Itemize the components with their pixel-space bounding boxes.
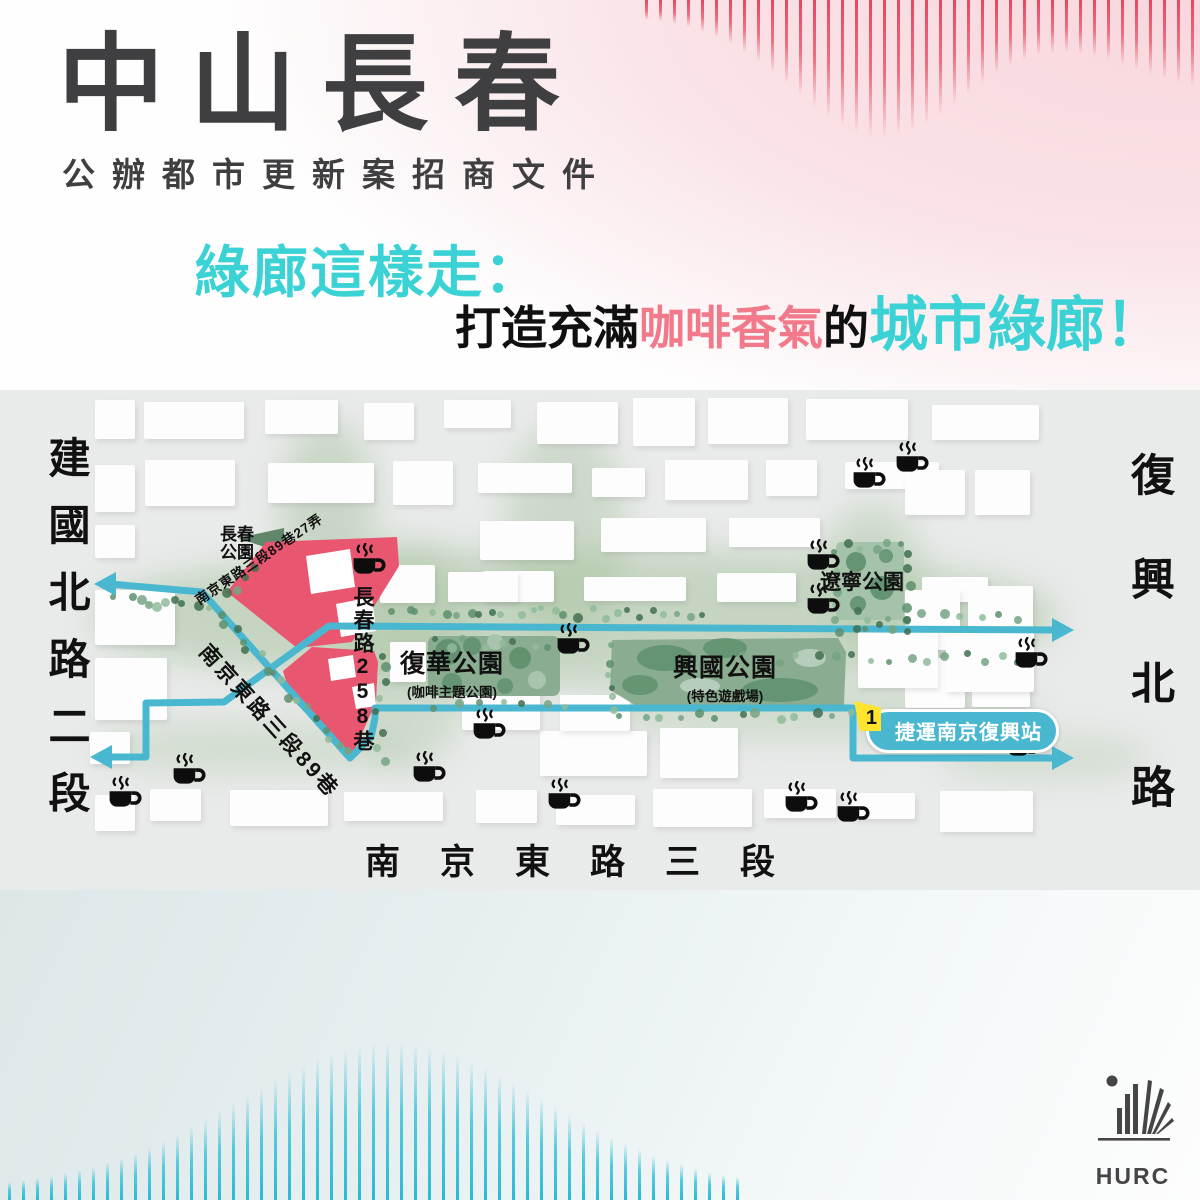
- wave-line: [414, 1044, 417, 1200]
- tree-dot: [240, 639, 247, 646]
- tree-dot: [856, 546, 863, 553]
- tree-dot: [886, 659, 892, 665]
- tree-dot: [902, 603, 912, 613]
- tree-dot: [610, 706, 618, 714]
- tree-dot: [873, 545, 882, 554]
- tree-dot: [678, 715, 684, 721]
- tree-dot: [241, 646, 249, 654]
- wave-line: [1107, 0, 1110, 60]
- wave-line: [736, 1177, 739, 1200]
- map-building: [150, 789, 201, 821]
- tree-dot: [868, 658, 874, 664]
- wave-line: [1065, 0, 1068, 52]
- tree-dot: [323, 727, 330, 734]
- tree-dot: [293, 697, 300, 704]
- coffee-cup-icon: [468, 708, 508, 744]
- wave-line: [1149, 0, 1152, 75]
- tree-dot: [815, 651, 824, 660]
- tree-dot: [1014, 616, 1022, 624]
- tree-dot: [917, 609, 926, 618]
- wave-line: [925, 0, 928, 124]
- map-building: [344, 792, 443, 821]
- wave-line: [568, 1114, 571, 1200]
- wave-line: [372, 1043, 375, 1200]
- tree-dot: [655, 714, 663, 722]
- wave-line: [1037, 0, 1040, 55]
- wave-line: [855, 0, 858, 133]
- coffee-cup-icon: [543, 778, 583, 814]
- tree-dot: [313, 715, 320, 722]
- wave-line: [1121, 0, 1124, 65]
- map-building: [144, 402, 244, 439]
- tree-dot: [674, 611, 680, 617]
- tree-dot: [411, 608, 418, 615]
- tree-dot: [777, 715, 786, 724]
- tree-dot: [602, 615, 610, 623]
- tree-dot: [609, 685, 615, 691]
- mrt-station-badge: 捷運南京復興站 1: [866, 709, 1059, 753]
- wave-line: [813, 0, 816, 108]
- wave-line: [1135, 0, 1138, 70]
- coffee-cup-icon: [104, 776, 144, 812]
- map-building: [975, 470, 1030, 515]
- tree-dot: [616, 713, 622, 719]
- wave-line: [288, 1071, 291, 1200]
- tree-dot: [904, 550, 912, 558]
- wave-line: [708, 1172, 711, 1200]
- map-building: [145, 460, 235, 506]
- tree-dot: [110, 594, 116, 600]
- map-area: 建國北路二段 復興北路 南京東路三段 南京東路三段89巷27弄 南京東路三段89…: [0, 390, 1200, 890]
- park-label-changchun: 長春 公園: [220, 526, 276, 563]
- tree-dot: [284, 694, 293, 703]
- slogan-part-1: 打造充滿: [455, 302, 639, 355]
- wave-line: [1177, 0, 1180, 83]
- tree-dot: [844, 539, 853, 548]
- map-building: [478, 463, 572, 493]
- wave-line: [680, 1164, 683, 1200]
- tree-dot: [904, 628, 911, 635]
- wave-line: [92, 1167, 95, 1200]
- wave-line: [358, 1045, 361, 1200]
- slogan-part-coffee: 咖啡香氣: [639, 302, 823, 355]
- map-building: [95, 465, 135, 512]
- tree-dot: [829, 713, 835, 719]
- tree-dot: [981, 658, 989, 666]
- tree-dot: [711, 715, 718, 722]
- wave-line: [694, 1168, 697, 1200]
- tree-dot: [218, 611, 226, 619]
- tree-dot: [459, 635, 466, 642]
- tree-dot: [835, 628, 844, 637]
- coffee-cup-icon: [780, 781, 820, 817]
- wave-line: [743, 0, 746, 53]
- tree-dot: [995, 611, 1002, 618]
- road-label-nanjing-e-rd: 南京東路三段: [250, 834, 890, 885]
- wave-line: [995, 0, 998, 74]
- coffee-cup-icon: [552, 623, 592, 659]
- wave-line: [8, 1182, 11, 1200]
- tree-dot: [940, 652, 949, 661]
- coffee-cup-icon: [168, 753, 208, 789]
- wave-line: [106, 1162, 109, 1200]
- wave-line: [897, 0, 900, 136]
- map-building: [480, 521, 574, 560]
- tree-dot: [590, 605, 597, 612]
- tree-dot: [489, 609, 496, 616]
- wave-line: [274, 1079, 277, 1200]
- tree-dot: [379, 729, 387, 737]
- tree-dot: [206, 605, 212, 611]
- wave-line: [981, 0, 984, 84]
- tree-dot: [161, 598, 170, 607]
- wave-line: [666, 1160, 669, 1200]
- tree-dot: [832, 652, 841, 661]
- coffee-cup-icon: [832, 791, 872, 827]
- wave-line: [78, 1170, 81, 1200]
- wave-line: [939, 0, 942, 115]
- tree-dot: [544, 644, 551, 651]
- tree-dot: [848, 709, 855, 716]
- wave-line: [484, 1067, 487, 1200]
- wave-line: [911, 0, 914, 131]
- footer: HURC: [0, 890, 1200, 1200]
- wave-line: [246, 1095, 249, 1200]
- route-arrow-east-1: [1052, 618, 1074, 642]
- map-building: [265, 400, 338, 434]
- tree-dot: [864, 617, 871, 624]
- wave-line: [1191, 0, 1194, 86]
- tree-dot: [813, 708, 823, 718]
- tree-dot: [234, 625, 242, 633]
- map-building: [393, 461, 453, 505]
- tree-dot: [614, 609, 622, 617]
- wave-line: [953, 0, 956, 105]
- map-building: [660, 728, 738, 778]
- park-label-liaoning: 遼寧公園: [820, 566, 935, 596]
- wave-line: [316, 1058, 319, 1200]
- wave-line: [757, 0, 760, 62]
- park-label-fuhua-name: 復華公園: [382, 644, 522, 680]
- wave-line: [722, 1175, 725, 1200]
- hurc-logo-mark: [1090, 1072, 1176, 1156]
- page-title: 中山長春: [58, 30, 586, 141]
- tree-dot: [325, 736, 332, 743]
- map-building: [653, 789, 752, 827]
- tree-dot: [475, 611, 482, 618]
- tree-dot: [908, 654, 917, 663]
- wave-line: [701, 0, 704, 32]
- wave-line: [190, 1127, 193, 1200]
- wave-line: [687, 0, 690, 27]
- wave-line: [218, 1111, 221, 1200]
- map-building: [766, 460, 817, 496]
- tree-dot: [999, 652, 1007, 660]
- map-building: [95, 400, 135, 439]
- coffee-cup-icon: [348, 543, 388, 579]
- tree-dot: [532, 643, 539, 650]
- tree-dot: [624, 607, 630, 613]
- map-building: [380, 565, 435, 603]
- tree-dot: [178, 600, 185, 607]
- tree-dot: [562, 704, 568, 710]
- wave-line: [1009, 0, 1012, 66]
- wave-line: [1163, 0, 1166, 79]
- tree-dot: [270, 670, 276, 676]
- tree-dot: [636, 614, 643, 621]
- map-building: [584, 577, 686, 601]
- map-building: [592, 468, 645, 497]
- tree-dot: [432, 636, 438, 642]
- wave-line: [1093, 0, 1096, 56]
- tree-dot: [940, 609, 950, 619]
- map-building: [268, 463, 374, 503]
- tree-dot: [699, 612, 705, 618]
- tree-dot: [888, 625, 897, 634]
- tree-dot: [790, 713, 798, 721]
- wave-line: [582, 1122, 585, 1200]
- map-building: [633, 398, 695, 446]
- mrt-station-name: 捷運南京復興站: [866, 709, 1059, 753]
- tree-dot: [559, 611, 567, 619]
- map-building: [444, 400, 511, 428]
- map-building: [95, 525, 135, 558]
- wave-line: [260, 1087, 263, 1200]
- wave-line: [645, 0, 648, 20]
- wave-line: [610, 1137, 613, 1200]
- park-label-changchun-line2: 公園: [220, 544, 276, 562]
- map-building: [665, 460, 748, 500]
- wave-line: [624, 1143, 627, 1200]
- tree-dot: [695, 709, 704, 718]
- map-building: [601, 518, 706, 552]
- road-label-jianguo-n-rd: 建國北路二段: [36, 436, 97, 838]
- park-label-xingguo: 興國公園 (特色遊戲場): [655, 648, 795, 705]
- tree-dot: [605, 672, 611, 678]
- wave-line: [64, 1173, 67, 1200]
- road-label-fuxing-n-rd: 復興北路: [1116, 452, 1180, 868]
- tree-dot: [430, 705, 437, 712]
- hurc-logo: HURC: [1090, 1072, 1176, 1190]
- tree-dot: [219, 620, 228, 629]
- tree-dot: [740, 711, 747, 718]
- wave-line: [204, 1119, 207, 1200]
- wave-line: [715, 0, 718, 37]
- map-building: [448, 572, 518, 602]
- tree-dot: [848, 651, 855, 658]
- tree-dot: [233, 586, 242, 595]
- tree-dot: [750, 708, 760, 718]
- wave-line: [638, 1149, 641, 1200]
- tree-dot: [453, 612, 460, 619]
- wave-line: [841, 0, 844, 127]
- wave-line: [540, 1098, 543, 1200]
- map-building: [95, 658, 167, 720]
- wave-line: [652, 1155, 655, 1200]
- coffee-cup-icon: [848, 457, 888, 493]
- tree-dot: [573, 613, 583, 623]
- tree-dot: [979, 614, 986, 621]
- tree-dot: [259, 650, 266, 657]
- tree-dot: [964, 650, 971, 657]
- tree-dot: [129, 593, 137, 601]
- wave-line: [428, 1046, 431, 1200]
- tree-dot: [956, 613, 963, 620]
- wave-line: [232, 1103, 235, 1200]
- tree-dot: [923, 658, 931, 666]
- map-building: [940, 791, 1033, 832]
- wave-line: [869, 0, 872, 137]
- wave-line: [470, 1061, 473, 1200]
- map-building: [364, 403, 414, 440]
- map-building: [932, 405, 1039, 440]
- tree-dot: [518, 611, 526, 619]
- tree-dot: [337, 742, 344, 749]
- wave-line: [554, 1106, 557, 1200]
- map-building: [537, 402, 618, 444]
- tree-dot: [903, 616, 911, 624]
- wave-line: [162, 1141, 165, 1200]
- wave-line: [785, 0, 788, 84]
- tree-dot: [531, 607, 537, 613]
- wave-line: [729, 0, 732, 44]
- wave-line: [456, 1055, 459, 1200]
- map-building: [806, 399, 908, 440]
- wave-line: [1079, 0, 1082, 54]
- wave-line: [673, 0, 676, 24]
- park-label-fuhua: 復華公園 (咖啡主題公園): [382, 644, 522, 701]
- wave-line: [883, 0, 886, 138]
- header: 中山長春 公辦都市更新案招商文件 綠廊這樣走： 打造充滿咖啡香氣的城市綠廊！: [0, 0, 1200, 390]
- map-building: [230, 790, 328, 826]
- tree-dot: [885, 616, 891, 622]
- map-building: [540, 731, 647, 776]
- tree-dot: [660, 611, 667, 618]
- map-building: [717, 573, 796, 602]
- slogan-part-green-corridor: 城市綠廊！: [869, 296, 1164, 355]
- poster: 中山長春 公辦都市更新案招商文件 綠廊這樣走： 打造充滿咖啡香氣的城市綠廊！: [0, 0, 1200, 1200]
- tree-dot: [388, 608, 395, 615]
- wave-line: [526, 1090, 529, 1200]
- tree-dot: [876, 621, 883, 628]
- wave-line: [771, 0, 774, 73]
- wave-line: [659, 0, 662, 21]
- coffee-cup-icon: [1010, 637, 1050, 673]
- tree-dot: [862, 626, 868, 632]
- tree-dot: [853, 625, 861, 633]
- wave-line: [148, 1147, 151, 1200]
- park-label-changchun-line1: 長春: [220, 526, 276, 544]
- hurc-logo-text: HURC: [1090, 1163, 1176, 1190]
- coffee-cup-icon: [891, 441, 931, 477]
- wave-line: [1051, 0, 1054, 53]
- wave-line: [134, 1153, 137, 1200]
- tree-dot: [381, 757, 390, 766]
- wave-line: [967, 0, 970, 94]
- tree-dot: [305, 703, 311, 709]
- page-subtitle: 公辦都市更新案招商文件: [62, 148, 612, 196]
- wave-line: [386, 1042, 389, 1200]
- tree-dot: [608, 642, 614, 648]
- park-label-fuhua-subtitle: (咖啡主題公園): [382, 681, 522, 701]
- wave-line: [176, 1134, 179, 1200]
- tree-dot: [277, 676, 285, 684]
- tree-dot: [687, 613, 695, 621]
- wave-line: [36, 1178, 39, 1200]
- slogan-part-de: 的: [823, 302, 869, 355]
- tree-dot: [538, 605, 544, 611]
- wave-line: [596, 1130, 599, 1200]
- tree-dot: [643, 714, 650, 721]
- tree-dot: [854, 607, 862, 615]
- map-building: [708, 398, 788, 444]
- tree-dot: [606, 660, 614, 668]
- tree-dot: [544, 700, 552, 708]
- tree-dot: [883, 539, 891, 547]
- tree-dot: [429, 609, 436, 616]
- tree-dot: [518, 700, 525, 707]
- wave-line: [302, 1065, 305, 1200]
- coffee-cup-icon: [408, 751, 448, 787]
- tree-dot: [650, 607, 657, 614]
- tree-dot: [609, 693, 616, 700]
- wave-line: [442, 1050, 445, 1200]
- wave-line: [799, 0, 802, 96]
- wave-line: [120, 1158, 123, 1200]
- teal-waveform-decoration: [0, 1000, 1200, 1200]
- park-label-xingguo-name: 興國公園: [655, 648, 795, 684]
- wave-line: [498, 1075, 501, 1200]
- wave-line: [512, 1082, 515, 1200]
- road-label-lane-258: 長春路258巷: [347, 586, 377, 753]
- slogan: 打造充滿咖啡香氣的城市綠廊！: [455, 296, 1164, 355]
- wave-line: [344, 1049, 347, 1200]
- tree-dot: [497, 611, 504, 618]
- wave-line: [330, 1053, 333, 1200]
- wave-line: [827, 0, 830, 118]
- wave-line: [400, 1042, 403, 1200]
- wave-line: [22, 1180, 25, 1200]
- tree-dot: [898, 541, 904, 547]
- wave-line: [50, 1176, 53, 1200]
- map-building: [476, 790, 537, 823]
- wave-line: [1023, 0, 1026, 60]
- park-label-xingguo-subtitle: (特色遊戲場): [655, 685, 795, 705]
- tree-dot: [443, 610, 452, 619]
